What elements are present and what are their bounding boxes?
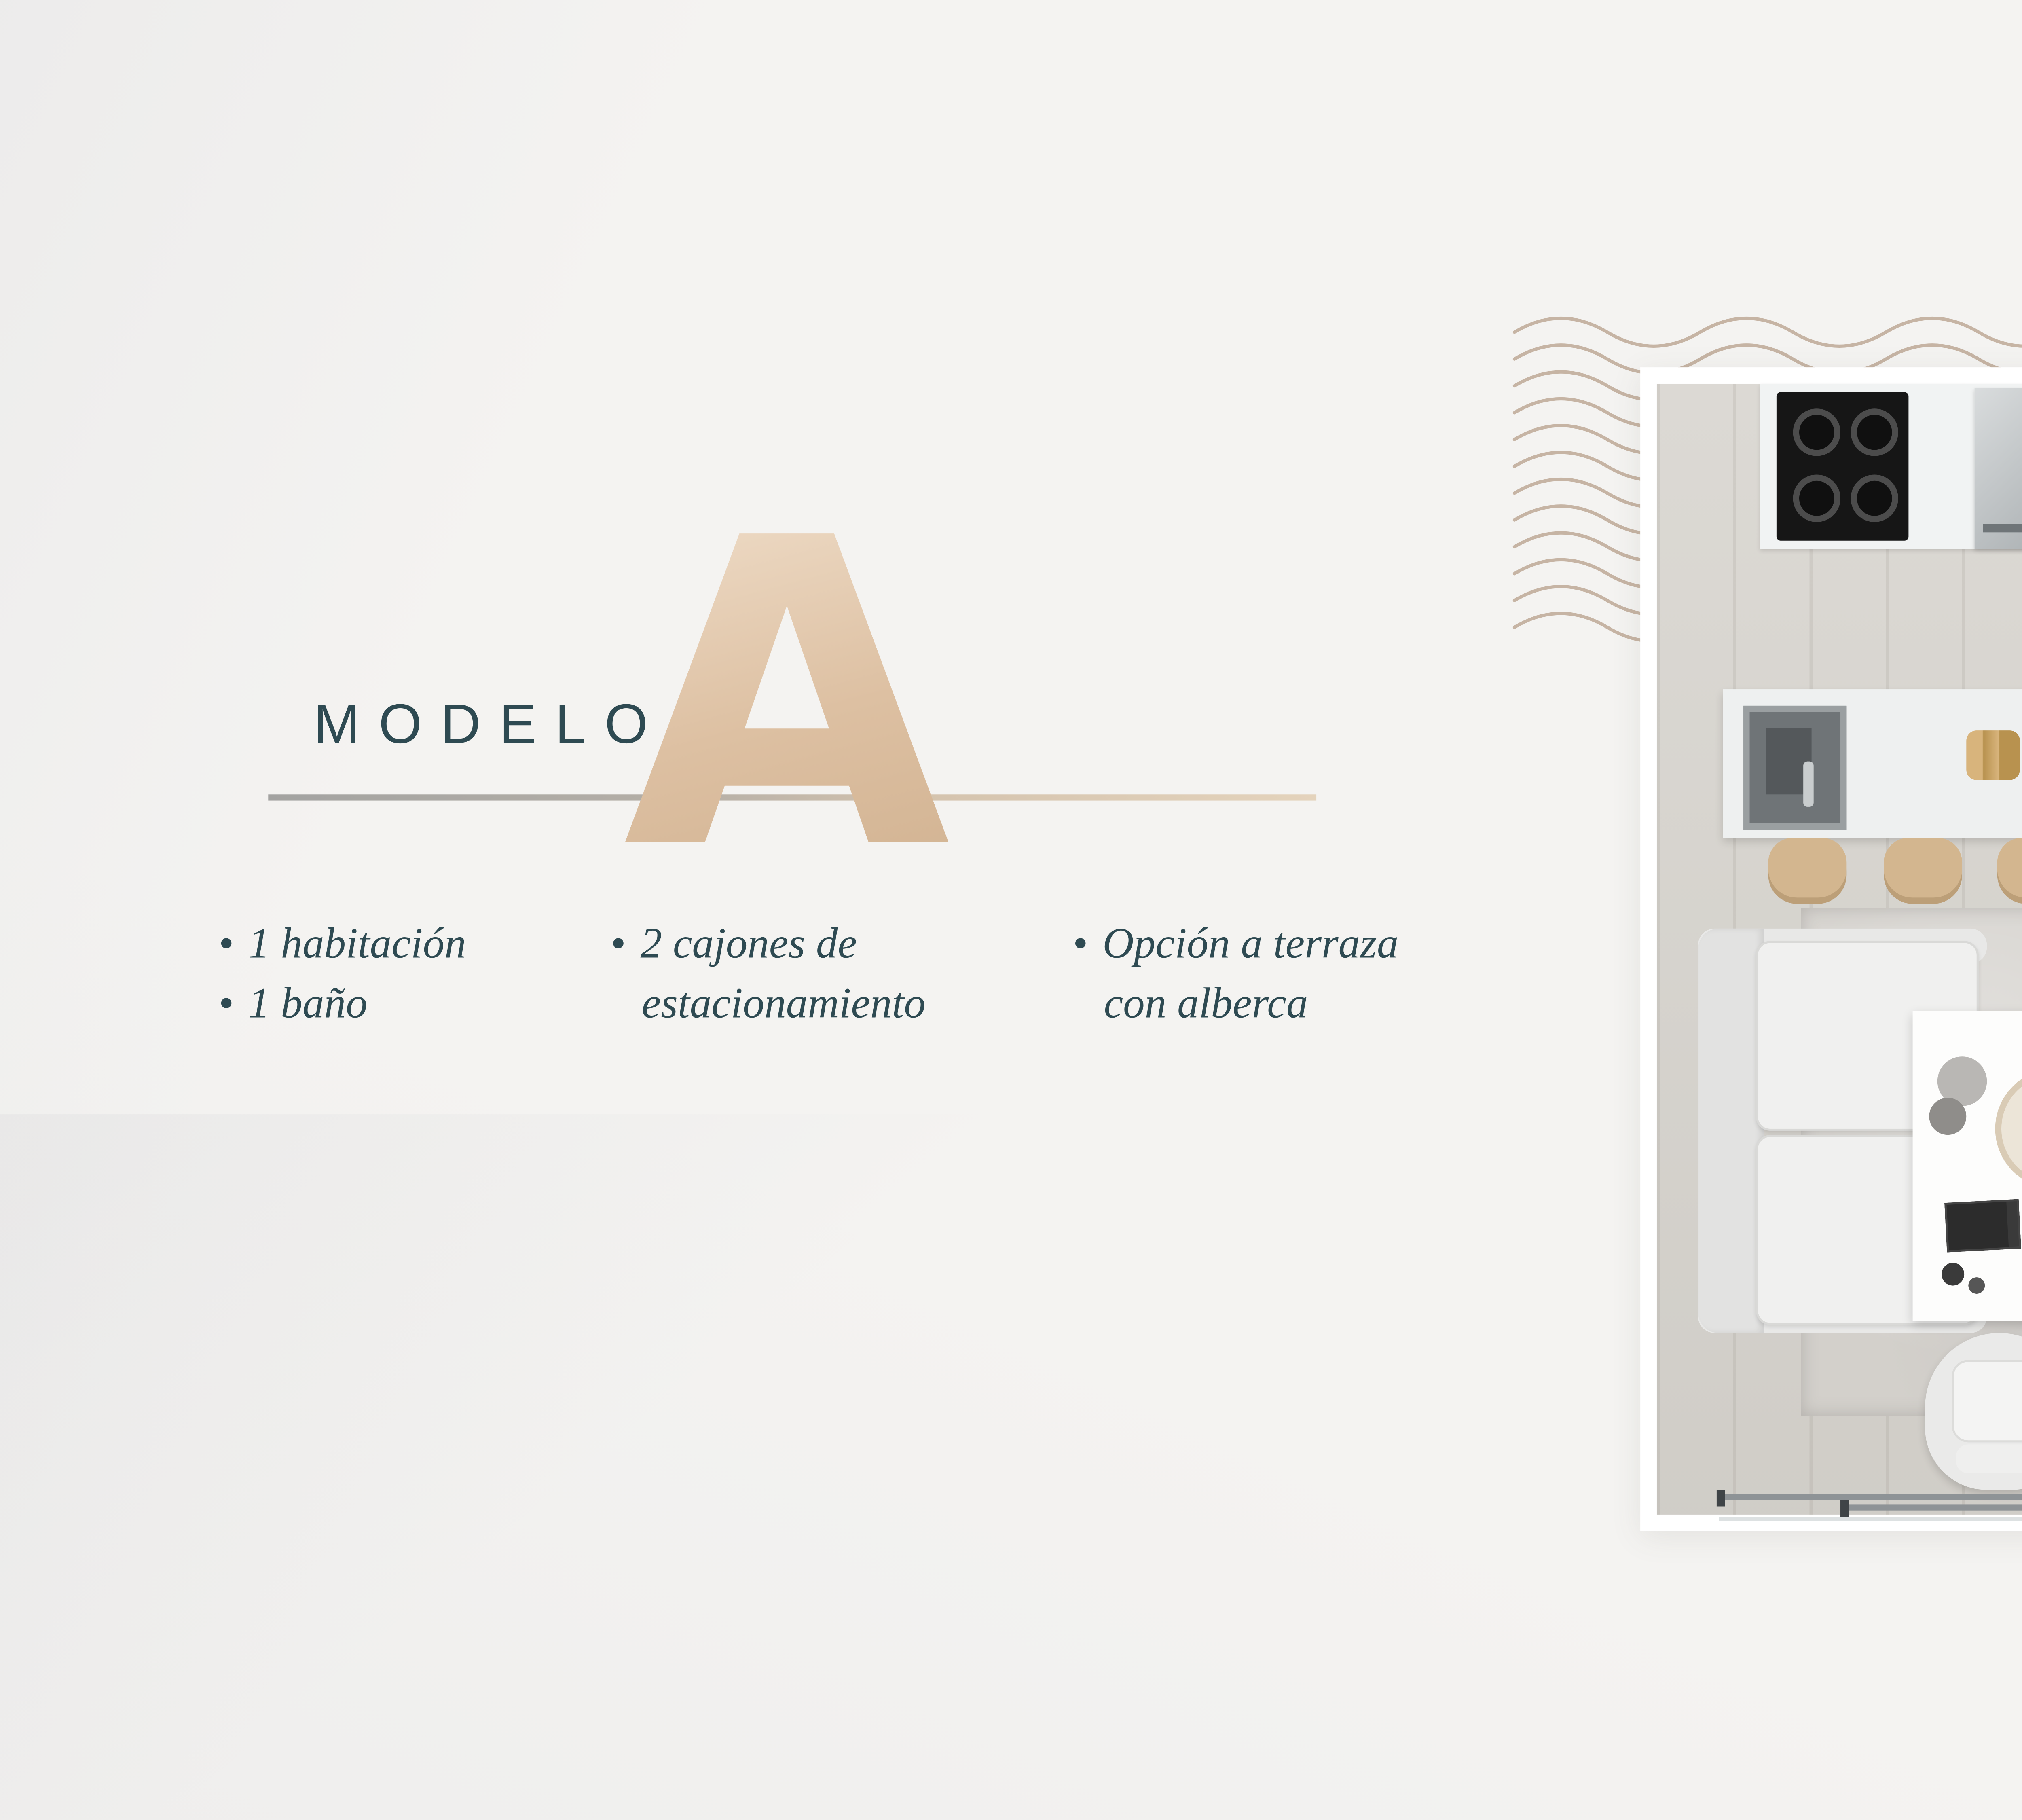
feature-text: 2 cajones de (640, 918, 857, 967)
floor-plan (1640, 367, 2022, 1531)
oven-handle (1983, 524, 2022, 532)
marble-texture (0, 1114, 1692, 1820)
feature-item-habitacion: •1 habitación (219, 914, 466, 974)
feature-text: estacionamiento (611, 974, 926, 1034)
oven (1975, 388, 2022, 549)
page-title: MODELO (314, 693, 667, 757)
bullet-icon: • (219, 918, 234, 967)
feature-text: con alberca (1073, 974, 1398, 1034)
kitchen-island (1723, 689, 2022, 838)
feature-column-2: •2 cajones de estacionamiento (611, 914, 926, 1034)
bullet-icon: • (219, 978, 234, 1027)
burner-icon (1793, 408, 1840, 456)
bullet-icon: • (1073, 918, 1088, 967)
burner-icon (1851, 474, 1898, 522)
feature-item-terraza: •Opción a terraza (1073, 914, 1398, 974)
sliding-window (1842, 1504, 2022, 1510)
bullet-icon: • (611, 918, 626, 967)
bar-stool (1884, 838, 1962, 904)
bread-board (1966, 730, 2020, 780)
decor-item (1942, 1263, 1964, 1285)
armchair-pad (1956, 1444, 2022, 1473)
feature-item-bano: •1 baño (219, 974, 466, 1034)
book (1944, 1199, 2021, 1253)
burner-icon (1851, 408, 1898, 456)
feature-text: 1 habitación (248, 918, 466, 967)
burner-icon (1793, 474, 1840, 522)
coffee-table (1913, 1011, 2022, 1321)
sliding-window (1719, 1494, 2022, 1500)
feature-column-3: •Opción a terraza con alberca (1073, 914, 1398, 1034)
feature-column-1: •1 habitación •1 baño (219, 914, 466, 1034)
sofa-backrest (1698, 929, 1764, 1333)
feature-text: Opción a terraza (1102, 918, 1398, 967)
feature-item-estacionamiento: •2 cajones de (611, 914, 926, 974)
slide: MODELO A •1 habitación •1 baño •2 cajone… (0, 0, 2022, 1820)
bar-stool (1768, 838, 1846, 904)
model-letter: A (623, 516, 950, 880)
decor-item (1968, 1277, 1985, 1294)
armchair-cushion (1952, 1360, 2022, 1442)
round-tray (1995, 1069, 2022, 1189)
decor-disc (1929, 1098, 1966, 1135)
window-sill (1719, 1517, 2022, 1521)
island-sink (1743, 706, 1846, 830)
feature-text: 1 baño (248, 978, 368, 1027)
cooktop (1777, 392, 1909, 540)
faucet-icon (1803, 762, 1814, 807)
